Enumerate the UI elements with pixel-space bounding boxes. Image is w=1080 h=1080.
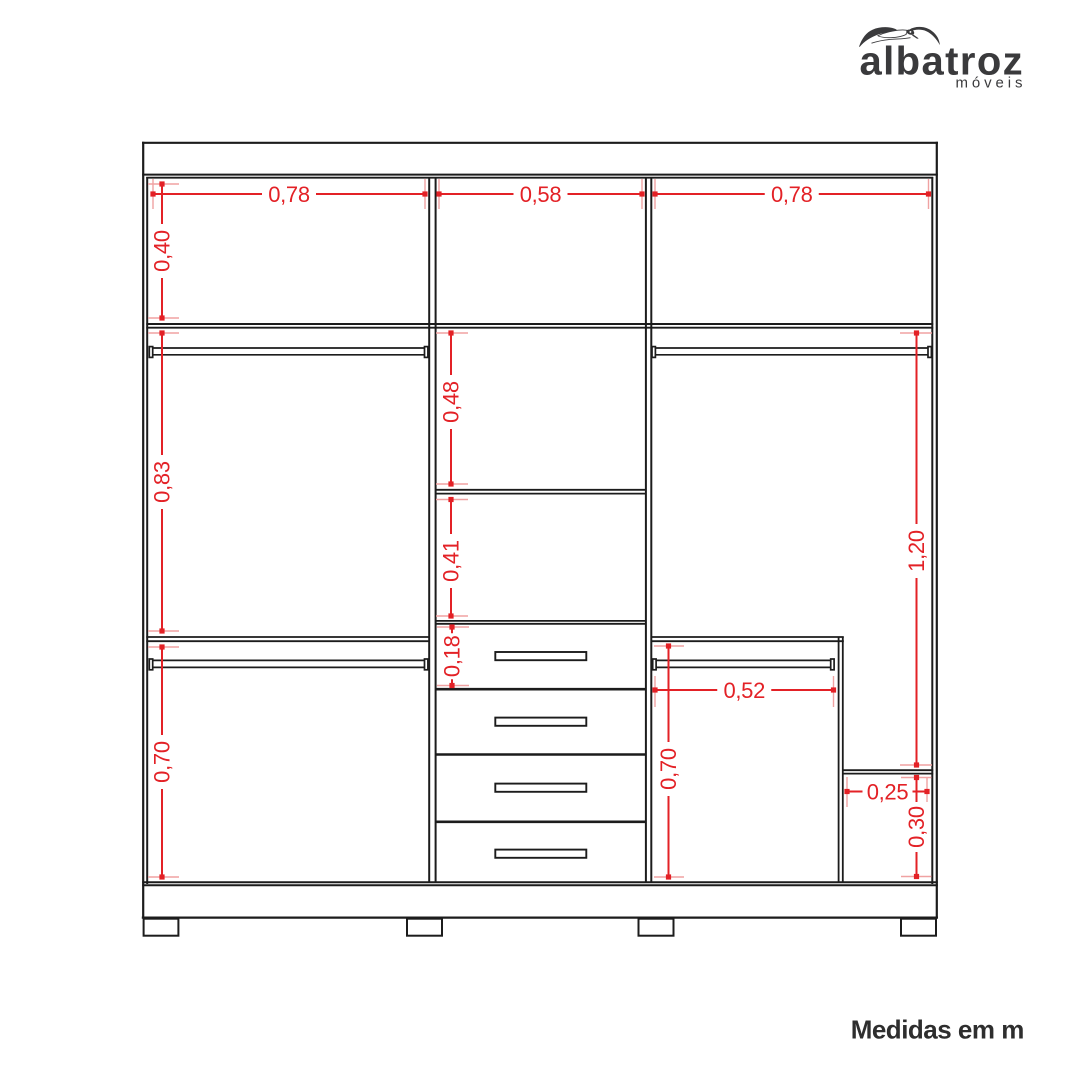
svg-text:1,20: 1,20 xyxy=(904,530,929,572)
svg-text:0,41: 0,41 xyxy=(439,540,464,582)
svg-text:0,58: 0,58 xyxy=(520,182,562,207)
svg-text:0,25: 0,25 xyxy=(867,780,909,805)
svg-text:0,78: 0,78 xyxy=(771,182,813,207)
svg-text:0,48: 0,48 xyxy=(439,381,464,423)
svg-text:0,18: 0,18 xyxy=(440,635,465,677)
svg-text:0,83: 0,83 xyxy=(150,461,175,503)
svg-text:móveis: móveis xyxy=(956,75,1027,92)
svg-text:0,70: 0,70 xyxy=(656,748,681,790)
svg-text:0,40: 0,40 xyxy=(150,230,175,272)
svg-text:0,52: 0,52 xyxy=(723,678,765,703)
svg-text:0,30: 0,30 xyxy=(904,806,929,848)
svg-text:0,78: 0,78 xyxy=(268,182,310,207)
svg-text:0,70: 0,70 xyxy=(150,741,175,783)
svg-text:Medidas em m: Medidas em m xyxy=(851,1015,1024,1045)
